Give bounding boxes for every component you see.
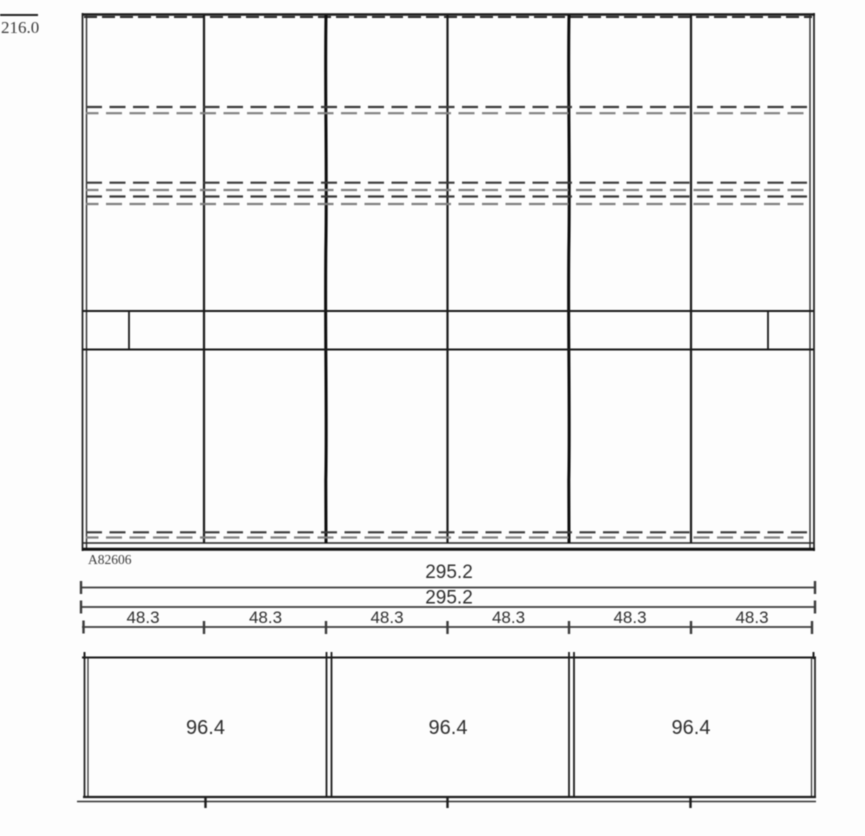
svg-text:48.3: 48.3	[492, 608, 525, 627]
svg-text:96.4: 96.4	[186, 717, 225, 739]
svg-text:A82606: A82606	[88, 552, 132, 567]
svg-text:48.3: 48.3	[735, 608, 768, 627]
svg-text:295.2: 295.2	[425, 588, 473, 609]
svg-text:48.3: 48.3	[370, 608, 403, 627]
svg-text:216.0: 216.0	[1, 18, 39, 37]
svg-text:295.2: 295.2	[425, 562, 473, 583]
svg-text:96.4: 96.4	[429, 717, 468, 739]
svg-text:48.3: 48.3	[613, 608, 646, 627]
svg-text:96.4: 96.4	[672, 717, 711, 739]
svg-text:48.3: 48.3	[249, 608, 282, 627]
svg-text:48.3: 48.3	[126, 608, 159, 627]
